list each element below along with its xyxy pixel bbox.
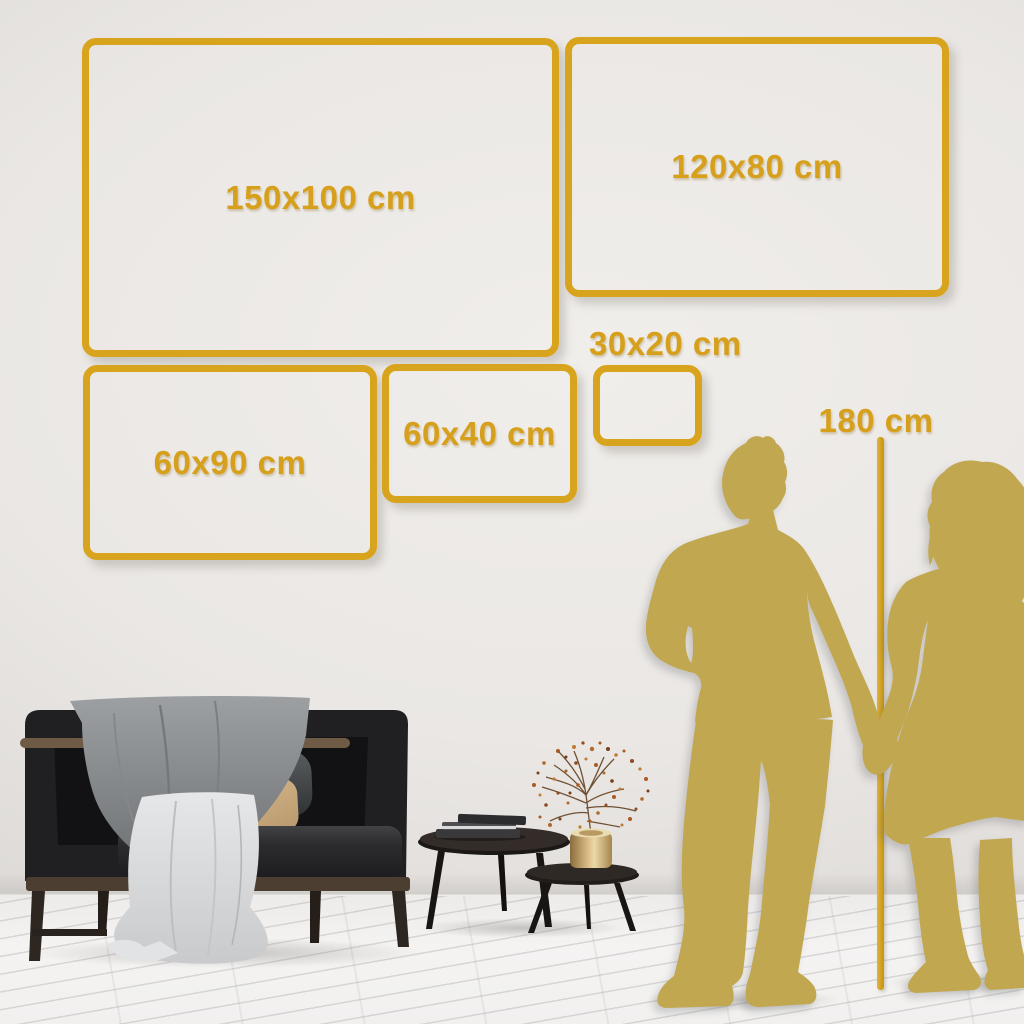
sofa bbox=[10, 693, 440, 993]
gold-vase bbox=[570, 829, 612, 869]
frame-60x90-label: 60x90 cm bbox=[154, 444, 307, 482]
woman-hair-strand bbox=[928, 530, 935, 565]
man-silhouette bbox=[646, 436, 887, 1008]
sofa-stretcher bbox=[32, 929, 107, 936]
sofa-leg-back-left bbox=[98, 891, 109, 935]
frame-60x40-label: 60x40 cm bbox=[403, 415, 556, 453]
frame-150x100-label: 150x100 cm bbox=[225, 179, 415, 217]
woman-torso-dress bbox=[868, 566, 1024, 845]
white-throw bbox=[114, 792, 268, 963]
woman-left-leg bbox=[908, 838, 981, 993]
frame-60x90: 60x90 cm bbox=[83, 365, 377, 560]
frame-60x40: 60x40 cm bbox=[382, 364, 577, 503]
man-trousers bbox=[657, 714, 833, 1008]
frame-150x100: 150x100 cm bbox=[82, 38, 559, 357]
sofa-leg-mid bbox=[310, 891, 321, 943]
sofa-leg-front-right bbox=[392, 891, 409, 947]
couple-silhouette bbox=[640, 430, 1024, 1015]
frame-30x20-label: 30x20 cm bbox=[589, 325, 742, 363]
sofa-leg-front-left bbox=[29, 891, 45, 961]
size-guide-scene: 150x100 cm 120x80 cm 60x90 cm 60x40 cm 3… bbox=[0, 0, 1024, 1024]
frame-120x80: 120x80 cm bbox=[565, 37, 949, 297]
woman-right-leg bbox=[979, 838, 1024, 990]
frame-120x80-label: 120x80 cm bbox=[671, 148, 842, 186]
man-head bbox=[722, 436, 787, 519]
book-stack bbox=[434, 814, 526, 841]
table-small bbox=[525, 863, 639, 933]
coffee-tables bbox=[408, 733, 653, 948]
